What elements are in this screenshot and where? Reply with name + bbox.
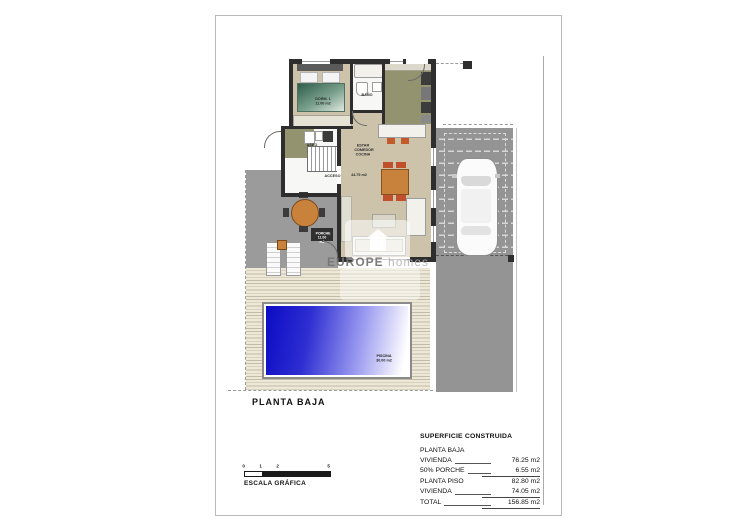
scale-tick-5: 5 [327, 465, 330, 470]
window-kitchen [390, 59, 403, 64]
pool-area: 30.00 m2 [376, 359, 392, 363]
wall-leftwing-bottom [281, 193, 341, 197]
scale-tick-0: 0 [242, 465, 245, 470]
window-right-3 [431, 226, 436, 242]
access-label: ACCESO [320, 173, 344, 180]
watermark-brand-secondary: homes [388, 255, 429, 269]
row-label: VIVIENDA [420, 487, 452, 497]
side-path-line [516, 128, 517, 392]
window-right-2 [431, 190, 436, 208]
aseo-name: ASEO [306, 143, 318, 147]
parcel-boundary-bottom [228, 390, 433, 391]
scale-segment-black-2 [279, 472, 330, 476]
watermark-faint-block [340, 268, 420, 300]
pool-label: PISCINA30.00 m2 [362, 352, 406, 368]
scale-tick-2: 2 [276, 465, 279, 470]
bedroom-name: DORM. 1 [315, 98, 331, 102]
total-value: 156.85 m2 [494, 498, 540, 508]
living-area: 44.75 m2 [351, 173, 367, 177]
scale-bar: 0 1 2 5 ESCALA GRÁFICA [244, 465, 344, 487]
living-name: ESTAR COMEDOR COCINA [354, 144, 371, 157]
row-label: VIVIENDA [420, 456, 452, 466]
summary-row-vivienda-baja: VIVIENDA 76.25 m2 [420, 456, 540, 466]
row-label: 50% PORCHE [420, 466, 465, 476]
leader-line [455, 494, 491, 495]
floor-plan-page: PISCINA30.00 m2 PORCHE11.00 m2 [0, 0, 756, 528]
aseo-label: ASEO [302, 142, 322, 149]
window-right-1 [431, 148, 436, 166]
island-stool-2 [401, 138, 409, 144]
porch-label-box: PORCHE11.00 m2 [311, 228, 333, 241]
summary-section2-heading: PLANTA PISO [420, 477, 464, 487]
summary-title: SUPERFICIE CONSTRUIDA [420, 432, 540, 442]
wall-vestibule-left [281, 126, 285, 197]
dining-chair-4 [396, 195, 406, 201]
porch-chair-2 [299, 226, 308, 232]
subtotal-value: 82.80 m2 [494, 477, 540, 487]
scale-tick-1: 1 [259, 465, 262, 470]
bed-headboard [297, 64, 343, 71]
summary-row-vivienda-piso: VIVIENDA 74.05 m2 [420, 487, 540, 497]
summary-row-total: TOTAL 156.85 m2 [420, 498, 540, 508]
bathroom-name: BAÑO [359, 93, 375, 97]
island-stool-1 [387, 138, 395, 144]
area-summary-table: SUPERFICIE CONSTRUIDA PLANTA BAJA VIVIEN… [420, 432, 540, 509]
scale-bar-segments [244, 471, 331, 477]
porch-round-table [291, 199, 319, 227]
kitchen-island [378, 124, 426, 138]
leader-line [444, 505, 491, 506]
entry-pillar [463, 61, 472, 69]
row-value: 6.55 m2 [494, 466, 540, 476]
washer [323, 131, 333, 142]
scale-bar-label: ESCALA GRÁFICA [244, 480, 344, 487]
watermark-brand-primary: EUROPE [327, 255, 384, 269]
car-windshield [461, 176, 491, 186]
living-area-label: 44.75 m2 [346, 172, 372, 179]
porch-terrace-upper [246, 170, 281, 198]
scale-segment-white [245, 472, 262, 476]
bedroom-area: 11.00 m2 [315, 102, 331, 106]
wall-left-upper [289, 59, 293, 129]
bed-pillow-right [322, 72, 340, 83]
bathroom-label: BAÑO [354, 92, 380, 100]
porch-chair-4 [319, 208, 325, 217]
leader-line [468, 473, 491, 474]
stairs [307, 146, 339, 172]
row-value: 74.05 m2 [494, 487, 540, 497]
driveway-top-dashed [443, 124, 513, 125]
scale-segment-black-1 [262, 472, 279, 476]
parcel-boundary-left [245, 170, 246, 390]
car-roof [461, 189, 491, 223]
summary-row-porche: 50% PORCHE 6.55 m2 [420, 466, 540, 476]
watermark-house-body-icon [370, 238, 386, 251]
bathtub [354, 64, 383, 78]
watermark-house-roof-icon [367, 229, 389, 238]
summary-section1-heading: PLANTA BAJA [420, 446, 540, 456]
sun-lounger-2 [286, 242, 301, 276]
leader-line [455, 463, 491, 464]
total-label: TOTAL [420, 498, 441, 508]
living-label: ESTAR COMEDOR COCINA [349, 140, 377, 158]
bed-pillow-left [300, 72, 318, 83]
watermark-brand: EUROPE homes [327, 255, 429, 269]
aseo-basin [315, 131, 323, 141]
summary-row-subtotal: PLANTA PISO 82.80 m2 [420, 477, 540, 487]
entry-canopy-dashed [436, 63, 463, 64]
washbasin [372, 82, 382, 92]
wall-bath-kitchen [382, 62, 385, 124]
dining-chair-2 [396, 162, 406, 168]
wall-living-left [337, 126, 341, 262]
dining-chair-1 [383, 162, 393, 168]
car-rear-window [461, 226, 491, 235]
dining-table [381, 169, 409, 195]
porch-chair-3 [283, 208, 289, 217]
lounger-side-table [277, 240, 287, 250]
bottom-rule [482, 508, 540, 509]
access-name: ACCESO [325, 174, 340, 178]
parcel-boundary-right [543, 56, 544, 505]
dining-chair-3 [383, 195, 393, 201]
car-mirror-left [452, 174, 457, 178]
row-value: 76.25 m2 [494, 456, 540, 466]
porch-name: PORCHE [316, 232, 331, 235]
window-bedroom [302, 59, 330, 64]
wall-bedroom-bottom [281, 126, 353, 129]
watermark-logo-box [345, 220, 410, 260]
plan-title: PLANTA BAJA [252, 397, 326, 407]
pool-name: PISCINA [376, 355, 391, 359]
bedroom-label: DORM. 111.00 m2 [304, 95, 342, 109]
car-mirror-right [495, 174, 500, 178]
gate-post [508, 255, 514, 262]
